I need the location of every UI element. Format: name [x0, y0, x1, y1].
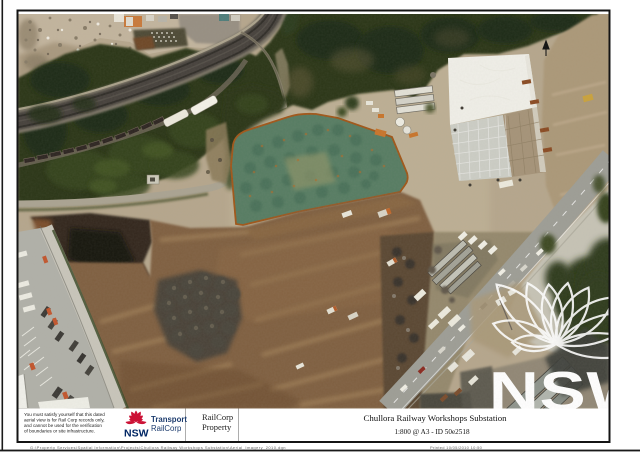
svg-text:of boundaries or site infrastr: of boundaries or site infrastructure.	[24, 429, 95, 434]
svg-text:Transport: Transport	[151, 415, 187, 424]
svg-text:RailCorp: RailCorp	[151, 424, 182, 433]
svg-text:and cannot be used for the ver: and cannot be used for the verification	[24, 423, 102, 428]
svg-text:RailCorp: RailCorp	[202, 412, 233, 422]
svg-text:G:\Property Services\Spatial I: G:\Property Services\Spatial Information…	[30, 445, 286, 450]
svg-text:1:800 @ A3 - ID 50e2518: 1:800 @ A3 - ID 50e2518	[394, 428, 469, 436]
svg-text:Chullora Railway Workshops Sub: Chullora Railway Workshops Substation	[363, 413, 507, 423]
svg-text:Printed 10/05/2010 10:50: Printed 10/05/2010 10:50	[430, 445, 483, 450]
svg-text:NSW: NSW	[124, 428, 149, 440]
svg-text:aerial view is for Rail Corp r: aerial view is for Rail Corp records onl…	[24, 418, 105, 423]
svg-text:You must satisfy yourself that: You must satisfy yourself that this date…	[24, 412, 105, 417]
svg-text:Property: Property	[202, 422, 232, 432]
